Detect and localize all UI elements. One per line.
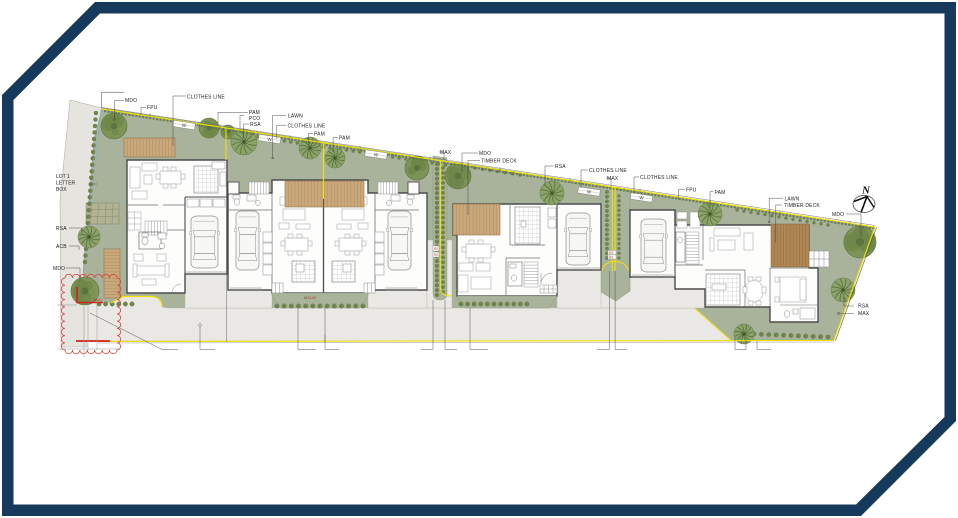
svg-text:MDO: MDO — [125, 98, 137, 104]
svg-text:FPU: FPU — [147, 105, 158, 111]
svg-text:MAX: MAX — [858, 311, 870, 317]
svg-text:BOX: BOX — [56, 187, 67, 193]
svg-text:LAWN: LAWN — [785, 197, 800, 203]
svg-text:RSA: RSA — [56, 226, 67, 232]
svg-text:MDO: MDO — [832, 212, 844, 218]
svg-text:MAX: MAX — [607, 176, 619, 182]
svg-text:M2142: M2142 — [304, 295, 317, 300]
svg-text:ACB: ACB — [56, 244, 67, 250]
svg-text:FPU: FPU — [686, 188, 697, 194]
svg-text:RSA: RSA — [250, 122, 261, 128]
svg-text:TIMBER DECK: TIMBER DECK — [481, 159, 517, 165]
svg-text:MDO: MDO — [53, 266, 65, 272]
svg-text:LETTER: LETTER — [56, 181, 76, 187]
svg-text:CLOTHES LINE: CLOTHES LINE — [187, 95, 225, 101]
svg-text:CLOTHES LINE: CLOTHES LINE — [640, 175, 678, 181]
svg-text:CLOTHES LINE: CLOTHES LINE — [589, 168, 627, 174]
svg-text:PAM: PAM — [314, 132, 325, 138]
svg-text:PAM: PAM — [715, 190, 726, 196]
svg-text:LOT 1: LOT 1 — [56, 174, 70, 180]
svg-text:RS: RS — [609, 256, 613, 260]
svg-text:CLOTHES LINE: CLOTHES LINE — [288, 124, 326, 130]
svg-text:RSA: RSA — [858, 304, 869, 310]
svg-text:MDO: MDO — [479, 151, 491, 157]
svg-text:MAX: MAX — [440, 150, 452, 156]
svg-text:RS: RS — [434, 253, 438, 257]
svg-text:RS: RS — [434, 247, 438, 251]
svg-text:PAM: PAM — [339, 136, 350, 142]
svg-text:LAWN: LAWN — [288, 114, 303, 120]
svg-text:RSA: RSA — [555, 164, 566, 170]
svg-text:N: N — [861, 185, 871, 197]
svg-text:TIMBER DECK: TIMBER DECK — [784, 203, 820, 209]
svg-text:RS: RS — [609, 251, 613, 255]
